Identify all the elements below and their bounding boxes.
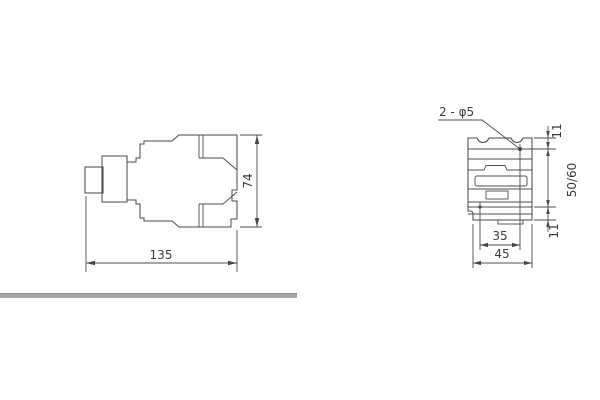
front-view [468,138,532,224]
front-view-outline [468,138,532,220]
hole-callout-label: 2 - φ5 [439,105,474,119]
dim-74-arrow-top [255,135,259,144]
dim-35-arrow-left [480,243,488,247]
side-view-coil-block [85,167,103,193]
technical-drawing: 135 74 2 - φ5 [0,0,600,400]
hole-callout: 2 - φ5 [438,105,520,149]
drawing-canvas: 135 74 2 - φ5 [0,0,600,400]
dim-right-arrow-2 [546,142,550,149]
dim-74-arrow-bottom [255,218,259,227]
dim-label-135: 135 [150,248,173,262]
dim-label-11-top: 11 [550,123,564,138]
front-view-din-clip [498,220,523,224]
side-view-outline [127,135,237,227]
front-view-section-lines [468,149,532,214]
dim-135-arrow-right [228,261,237,265]
dim-45-arrow-left [473,261,481,265]
dim-label-11-bottom: 11 [547,223,561,238]
dim-width-135: 135 [86,196,237,272]
dim-35-arrow-right [512,243,520,247]
front-view-dimensions: 2 - φ5 11 50/60 11 35 [438,105,579,268]
dim-45-arrow-right [524,261,532,265]
dim-height-74: 74 [240,135,262,227]
side-view [85,135,237,227]
divider-bar [0,293,297,298]
side-view-inner-details [199,135,237,227]
dim-label-74: 74 [241,173,255,188]
hole-callout-leader-line [438,120,520,149]
dim-label-45: 45 [494,247,509,261]
dim-135-arrow-left [86,261,95,265]
side-view-front-block [102,156,127,202]
dim-right-arrow-4 [546,200,550,207]
dim-right-column: 11 50/60 11 [525,123,579,238]
front-view-label-plate [475,176,527,186]
dim-right-extension-lines [525,138,556,220]
dim-right-arrow-3 [546,149,550,156]
dim-label-35: 35 [492,229,507,243]
front-view-small-window [486,191,508,199]
dim-label-50-60: 50/60 [565,163,579,198]
dim-right-arrow-5 [546,207,550,214]
